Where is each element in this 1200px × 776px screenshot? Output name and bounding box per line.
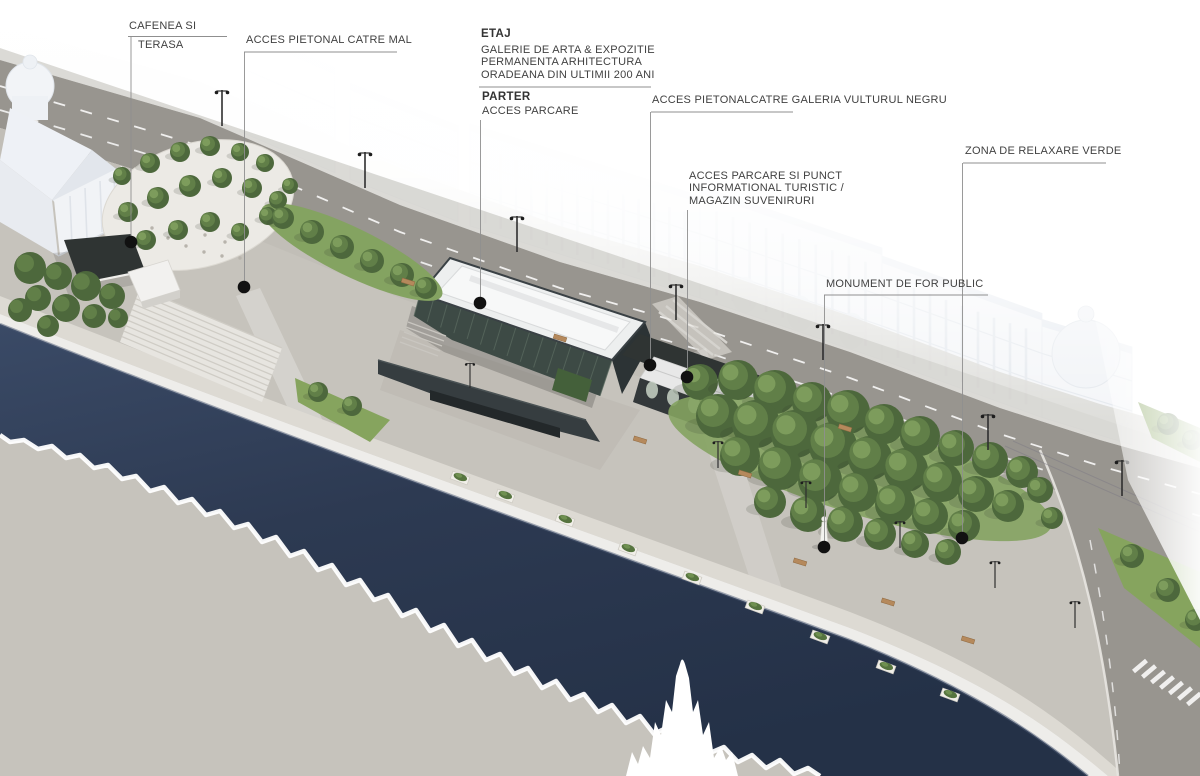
label-monument: MONUMENT DE FOR PUBLIC — [826, 278, 983, 290]
label-acces-mal: ACCES PIETONAL CATRE MAL — [246, 34, 412, 46]
label-etaj-body: GALERIE DE ARTA & EXPOZITIE PERMANENTA A… — [481, 44, 655, 81]
label-info: ACCES PARCARE SI PUNCT INFORMATIONAL TUR… — [689, 170, 844, 207]
label-cafenea-line2: TERASA — [138, 39, 184, 51]
label-etaj-title: ETAJ — [481, 28, 511, 40]
label-parter-title: PARTER — [482, 91, 531, 103]
riverfront-render — [0, 0, 1200, 776]
marker-dot-parter — [474, 297, 487, 310]
marker-dot-galeria — [644, 359, 657, 372]
marker-dot-monument — [818, 541, 831, 554]
marker-dot-mal — [238, 281, 251, 294]
marker-dot-info — [681, 371, 694, 384]
marker-dot-cafenea — [125, 236, 138, 249]
label-cafenea-line1: CAFENEA SI — [129, 20, 196, 32]
marker-dot-zona — [956, 532, 969, 545]
label-galeria: ACCES PIETONALCATRE GALERIA VULTURUL NEG… — [652, 94, 947, 106]
label-parter-body: ACCES PARCARE — [482, 105, 579, 117]
architectural-render-page: CAFENEA SI TERASA ACCES PIETONAL CATRE M… — [0, 0, 1200, 776]
label-zona: ZONA DE RELAXARE VERDE — [965, 145, 1122, 157]
